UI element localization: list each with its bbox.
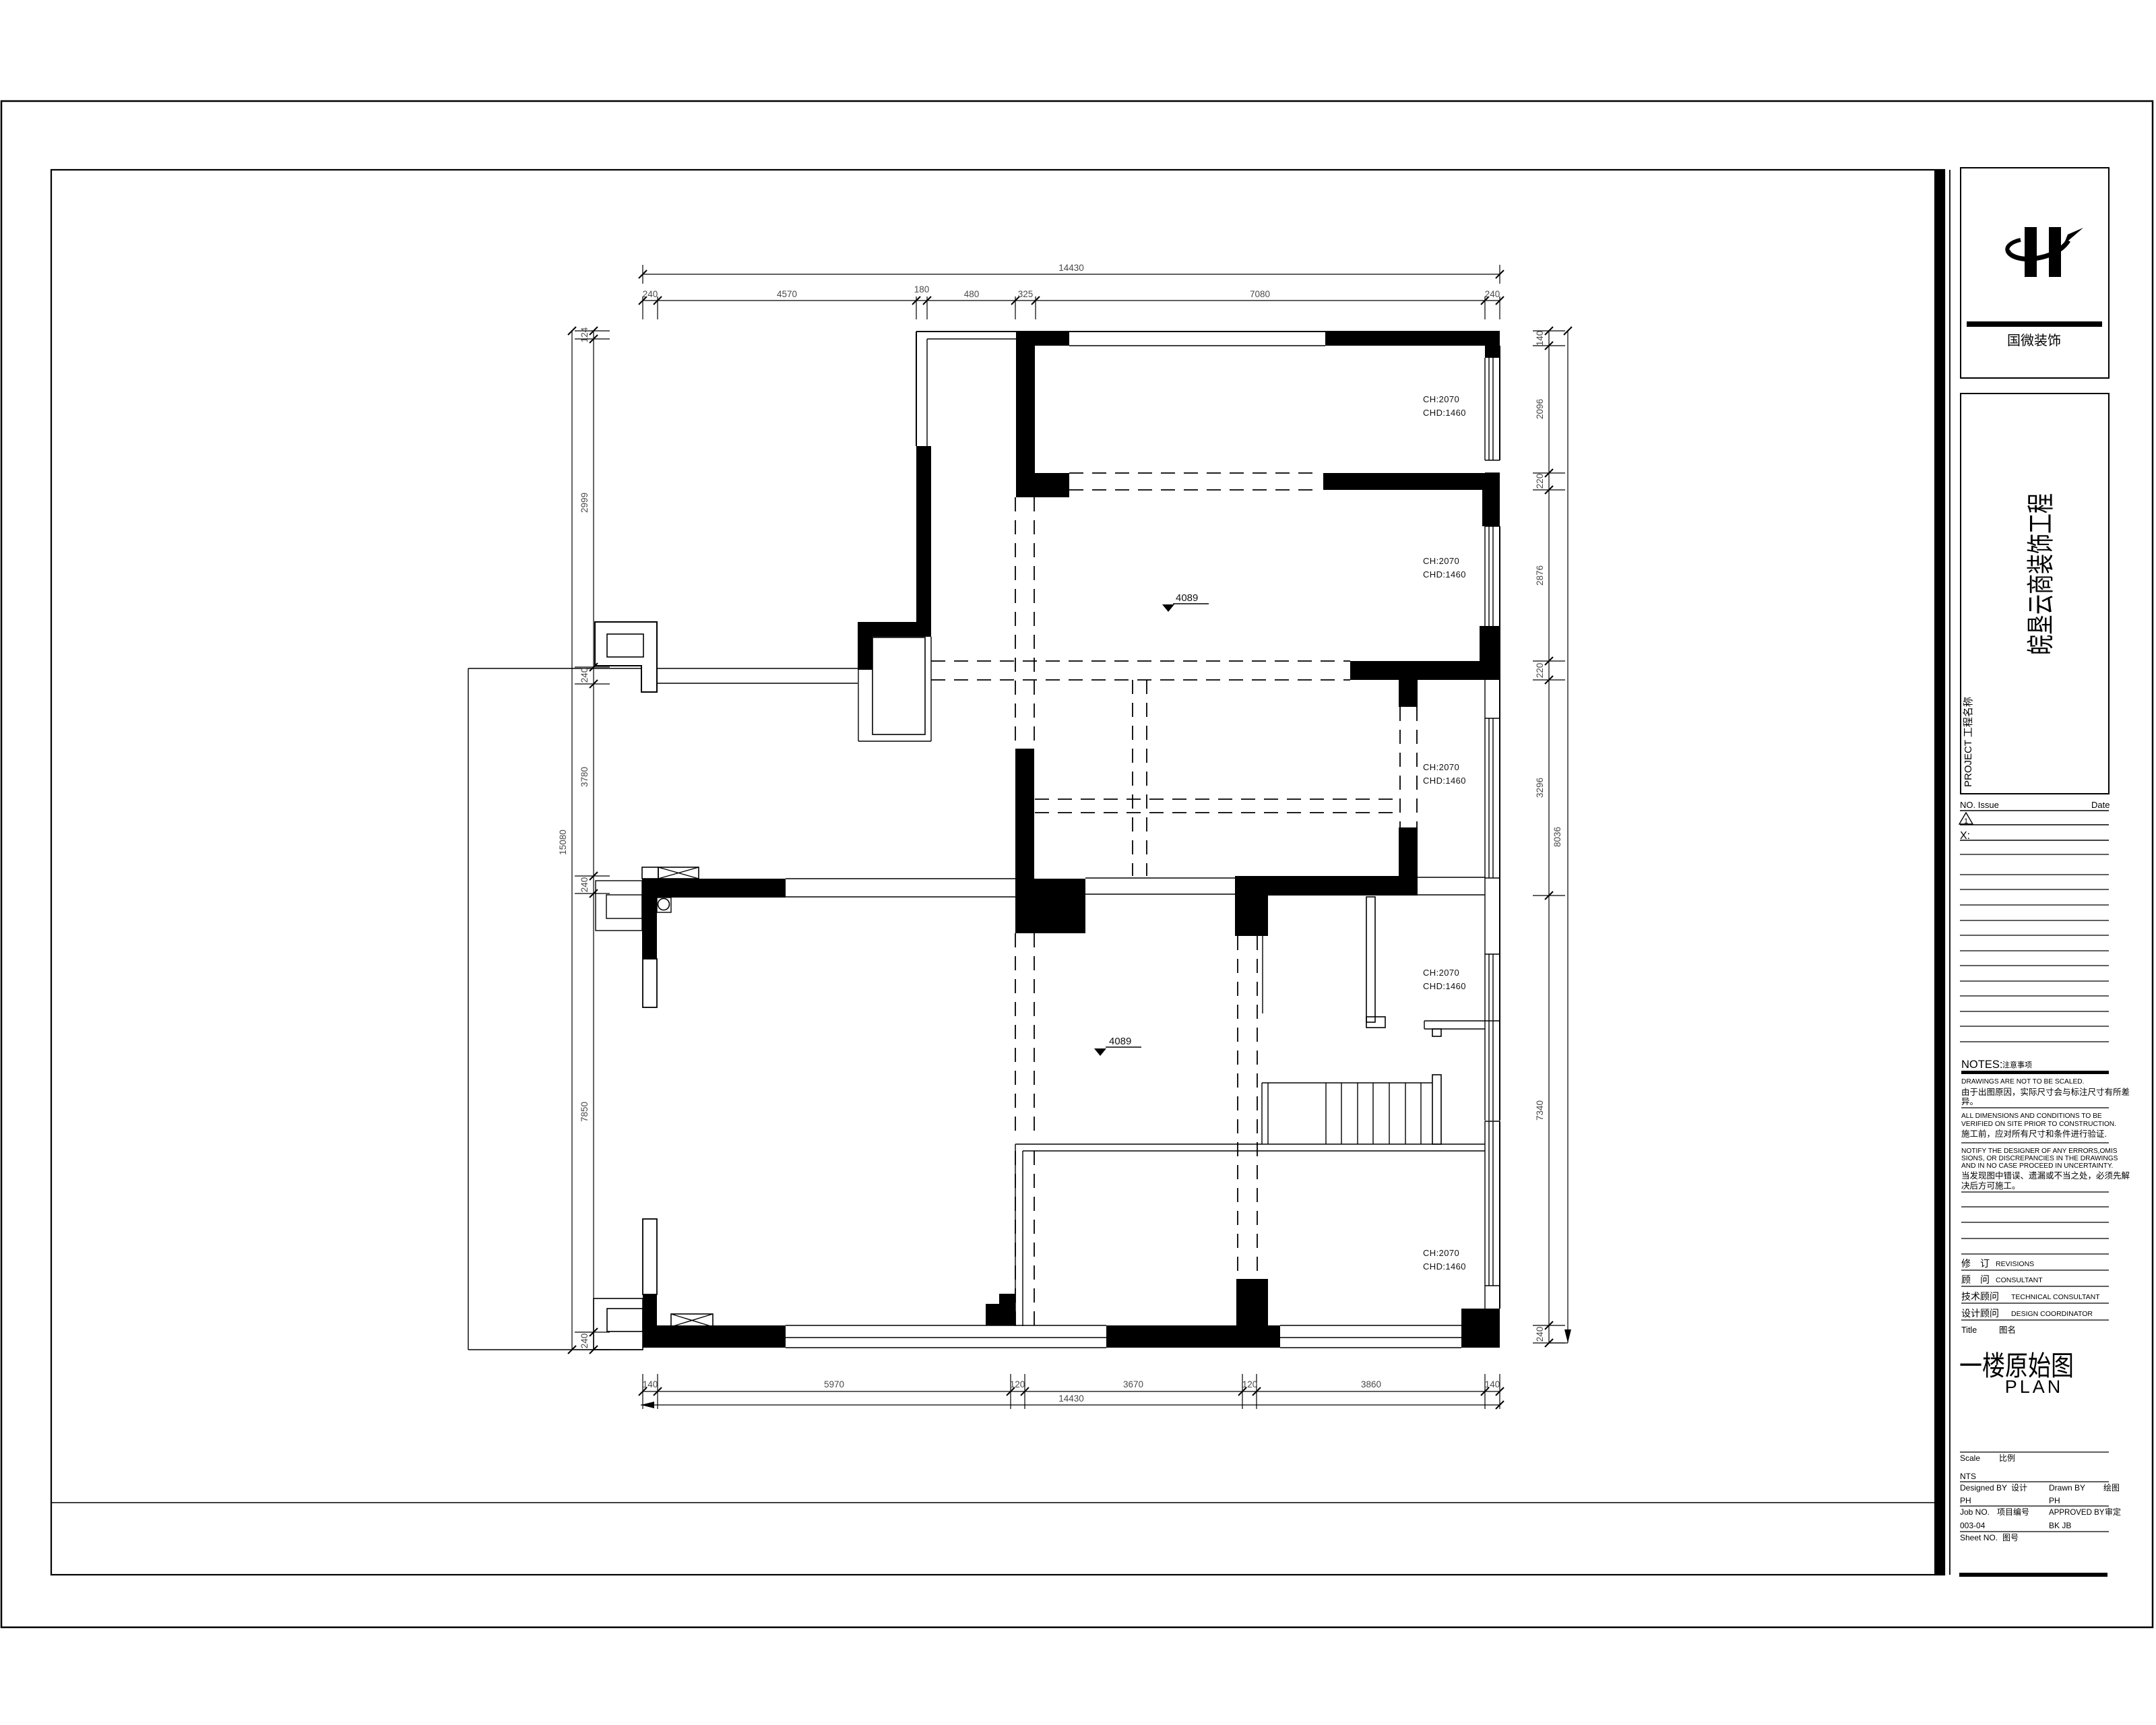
svg-text:8036: 8036 (1552, 827, 1562, 847)
svg-text:CH:2070: CH:2070 (1423, 968, 1459, 978)
svg-text:Designed BY: Designed BY (1960, 1483, 2007, 1493)
svg-text:4570: 4570 (777, 289, 797, 299)
svg-text:比例: 比例 (1999, 1453, 2015, 1463)
svg-text:3860: 3860 (1361, 1379, 1381, 1389)
svg-text:技术顾问: 技术顾问 (1961, 1291, 1999, 1302)
svg-text:设计顾问: 设计顾问 (1961, 1308, 1999, 1319)
svg-text:决后方可施工。: 决后方可施工。 (1961, 1181, 2021, 1191)
svg-text:AND IN NO CASE PROCEED IN UNCE: AND IN NO CASE PROCEED IN UNCERTAINTY. (1961, 1162, 2113, 1170)
svg-text:3296: 3296 (1535, 778, 1545, 798)
svg-text:120: 120 (1010, 1379, 1025, 1389)
svg-text:220: 220 (1535, 663, 1545, 679)
svg-text:7850: 7850 (579, 1102, 590, 1122)
svg-text:003-04: 003-04 (1960, 1521, 1986, 1530)
svg-text:皖垦云商装饰工程: 皖垦云商装饰工程 (2025, 493, 2056, 655)
svg-text:CH:2070: CH:2070 (1423, 394, 1459, 404)
svg-text:国微装饰: 国微装饰 (2007, 333, 2061, 348)
svg-text:SIONS, OR DISCREPANCIES IN THE: SIONS, OR DISCREPANCIES IN THE DRAWINGS (1961, 1155, 2118, 1162)
svg-text:Date: Date (2091, 800, 2110, 810)
svg-text:1: 1 (1964, 817, 1968, 825)
svg-text:Drawn BY: Drawn BY (2049, 1483, 2085, 1493)
svg-text:绘图: 绘图 (2103, 1482, 2120, 1493)
svg-text:220: 220 (1535, 474, 1545, 489)
svg-text:Sheet NO.: Sheet NO. (1960, 1533, 1998, 1542)
svg-text:PH: PH (2049, 1496, 2060, 1505)
svg-text:180: 180 (914, 284, 930, 294)
svg-text:2999: 2999 (579, 493, 590, 513)
svg-text:NO. Issue: NO. Issue (1960, 800, 1999, 810)
svg-text:修 订: 修 订 (1961, 1258, 1990, 1269)
svg-text:NOTES:: NOTES: (1961, 1059, 2002, 1071)
svg-text:CHD:1460: CHD:1460 (1423, 776, 1466, 786)
svg-text:由于出图原因，实际尺寸会与标注尺寸有所差: 由于出图原因，实际尺寸会与标注尺寸有所差 (1961, 1087, 2130, 1097)
svg-text:CONSULTANT: CONSULTANT (1996, 1276, 2043, 1284)
svg-text:图名: 图名 (1999, 1325, 2016, 1335)
svg-text:Job NO.: Job NO. (1960, 1507, 1990, 1517)
svg-text:ALL DIMENSIONS AND CONDITIONS: ALL DIMENSIONS AND CONDITIONS TO BE (1961, 1112, 2102, 1120)
svg-text:140: 140 (1535, 331, 1545, 346)
svg-text:124: 124 (579, 327, 590, 342)
svg-text:图号: 图号 (2002, 1533, 2019, 1542)
svg-text:PH: PH (1960, 1496, 1971, 1505)
svg-text:TECHNICAL CONSULTANT: TECHNICAL CONSULTANT (2011, 1293, 2100, 1301)
svg-text:240: 240 (579, 1334, 590, 1349)
svg-text:CHD:1460: CHD:1460 (1423, 569, 1466, 579)
svg-text:480: 480 (964, 289, 980, 299)
svg-text:4089: 4089 (1109, 1036, 1131, 1047)
svg-text:CHD:1460: CHD:1460 (1423, 408, 1466, 418)
svg-text:注意事项: 注意事项 (2002, 1060, 2032, 1069)
svg-text:CHD:1460: CHD:1460 (1423, 981, 1466, 991)
svg-text:14430: 14430 (1058, 263, 1084, 273)
svg-text:异。: 异。 (1961, 1097, 1978, 1106)
svg-text:CH:2070: CH:2070 (1423, 556, 1459, 566)
svg-text:240: 240 (1535, 1327, 1545, 1342)
svg-text:Scale: Scale (1960, 1453, 1980, 1463)
svg-text:设计: 设计 (2011, 1483, 2027, 1493)
svg-text:140: 140 (1485, 1379, 1500, 1389)
svg-text:140: 140 (643, 1379, 658, 1389)
svg-text:120: 120 (1242, 1379, 1258, 1389)
svg-text:项目编号: 项目编号 (1997, 1507, 2029, 1517)
svg-text:240: 240 (643, 289, 658, 299)
svg-text:施工前，应对所有尺寸和条件进行验证.: 施工前，应对所有尺寸和条件进行验证. (1961, 1129, 2107, 1139)
svg-text:2096: 2096 (1535, 399, 1545, 419)
svg-text:4089: 4089 (1176, 592, 1198, 604)
svg-text:2876: 2876 (1535, 565, 1545, 586)
svg-text:PROJECT 工程名称: PROJECT 工程名称 (1963, 697, 1974, 787)
svg-text:325: 325 (1018, 289, 1034, 299)
svg-text:7340: 7340 (1535, 1100, 1545, 1121)
svg-text:审定: 审定 (2105, 1507, 2121, 1517)
svg-text:3780: 3780 (579, 767, 590, 787)
svg-text:3670: 3670 (1123, 1379, 1143, 1389)
svg-text:CH:2070: CH:2070 (1423, 1248, 1459, 1258)
svg-text:14430: 14430 (1058, 1393, 1084, 1404)
svg-text:240: 240 (579, 877, 590, 893)
svg-text:Title: Title (1961, 1325, 1977, 1335)
svg-text:240: 240 (579, 668, 590, 683)
svg-text:PLAN: PLAN (2005, 1377, 2064, 1397)
svg-text:CH:2070: CH:2070 (1423, 762, 1459, 772)
svg-text:VERIFIED ON SITE PRIOR TO CONS: VERIFIED ON SITE PRIOR TO CONSTRUCTION. (1961, 1121, 2116, 1128)
svg-text:NOTIFY THE DESIGNER OF ANY ERR: NOTIFY THE DESIGNER OF ANY ERRORS,OMIS (1961, 1148, 2118, 1155)
svg-text:15080: 15080 (558, 829, 568, 855)
svg-text:REVISIONS: REVISIONS (1996, 1260, 2034, 1268)
svg-text:当发现图中错误、遗漏或不当之处，必须先解: 当发现图中错误、遗漏或不当之处，必须先解 (1961, 1170, 2130, 1181)
svg-text:APPROVED BY: APPROVED BY (2049, 1509, 2105, 1517)
svg-text:NTS: NTS (1960, 1472, 1976, 1481)
svg-text:DRAWINGS ARE NOT TO BE SCALED.: DRAWINGS ARE NOT TO BE SCALED. (1961, 1078, 2084, 1086)
svg-text:DESIGN COORDINATOR: DESIGN COORDINATOR (2011, 1310, 2093, 1318)
svg-text:CHD:1460: CHD:1460 (1423, 1261, 1466, 1272)
svg-text:BK JB: BK JB (2049, 1521, 2071, 1530)
svg-text:5970: 5970 (824, 1379, 844, 1389)
svg-text:顾 问: 顾 问 (1961, 1274, 1990, 1285)
svg-text:7080: 7080 (1250, 289, 1270, 299)
svg-text:240: 240 (1485, 289, 1500, 299)
